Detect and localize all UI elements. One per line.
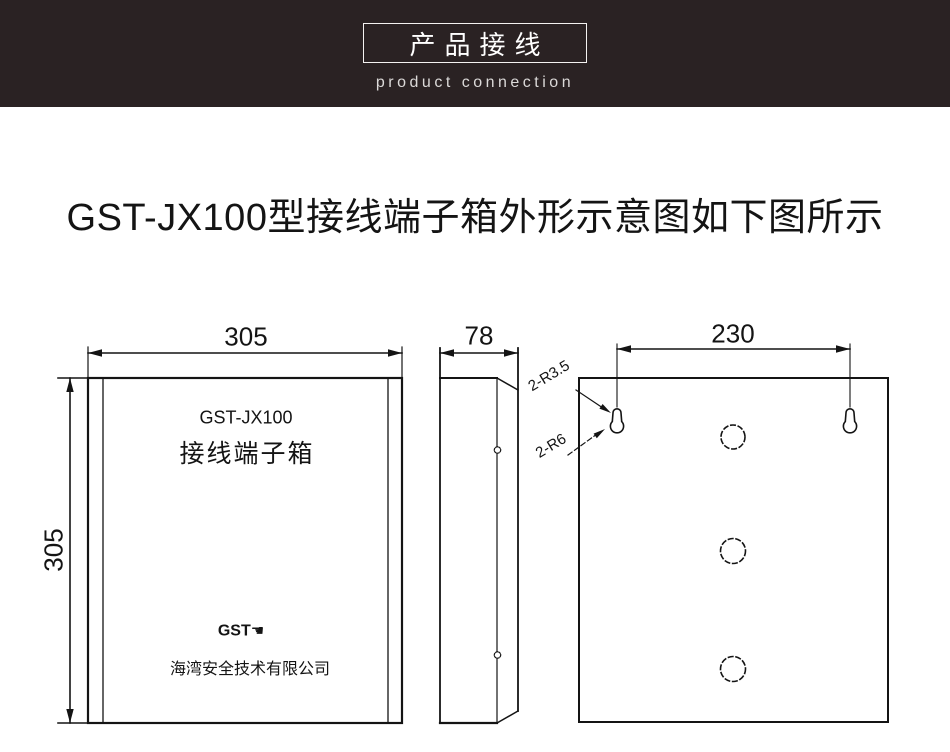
page: 产品接线 product connection GST-JX100型接线端子箱外… bbox=[0, 0, 950, 752]
dimension-label-depth-78: 78 bbox=[465, 321, 494, 352]
front-product-name: 接线端子箱 bbox=[177, 434, 314, 470]
side-bottom-bevel bbox=[497, 711, 518, 723]
side-screw-top bbox=[494, 447, 500, 453]
dimension-label-width-305: 305 bbox=[224, 322, 267, 353]
dimension-spacing-230 bbox=[617, 344, 850, 407]
knockout-hole-middle bbox=[721, 539, 746, 564]
mounting-slot-left bbox=[610, 409, 623, 433]
gst-logo: GST☚ bbox=[218, 622, 264, 641]
knockout-hole-bottom bbox=[721, 657, 746, 682]
side-view bbox=[440, 348, 518, 723]
knockout-hole-top bbox=[721, 425, 745, 449]
drawing-canvas bbox=[0, 0, 950, 752]
gst-logo-hand-icon: ☚ bbox=[251, 623, 264, 640]
gst-logo-text: GST bbox=[218, 623, 251, 640]
terminal-box-drawing: 305 305 78 230 GST-JX100 接线端子箱 GST☚ 海湾安全… bbox=[0, 0, 950, 752]
dimension-label-height-305: 305 bbox=[39, 528, 70, 571]
back-view bbox=[568, 344, 888, 722]
leader-r6 bbox=[568, 429, 605, 455]
side-top-bevel bbox=[497, 378, 518, 390]
side-screw-bottom bbox=[494, 652, 500, 658]
mounting-slot-right bbox=[843, 409, 856, 433]
leader-r35 bbox=[576, 390, 611, 413]
front-company-name: 海湾安全技术有限公司 bbox=[170, 655, 330, 679]
dimension-label-spacing-230: 230 bbox=[711, 319, 754, 350]
front-model-text: GST-JX100 bbox=[199, 408, 292, 429]
back-outline bbox=[579, 378, 888, 722]
